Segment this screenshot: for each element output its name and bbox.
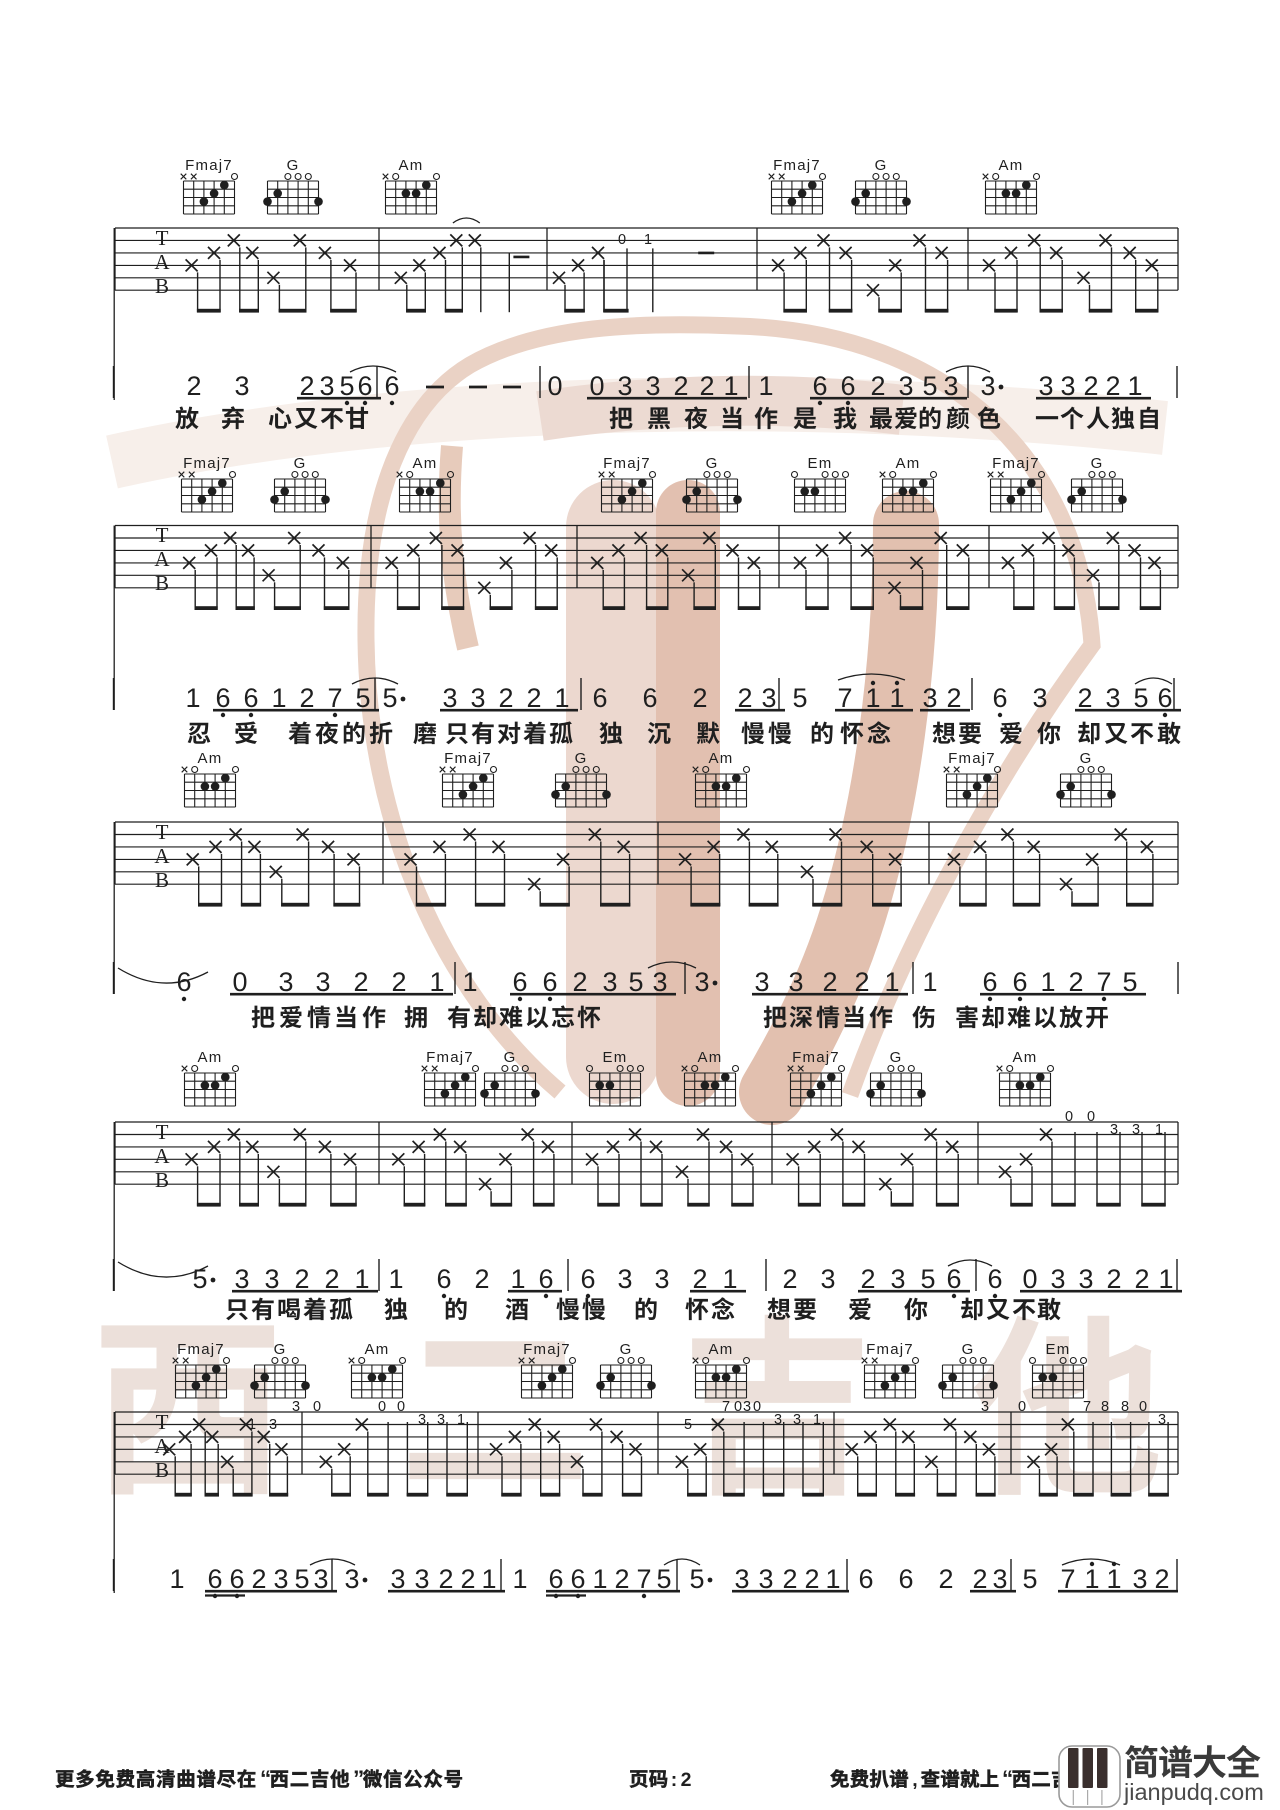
svg-text:5: 5 xyxy=(792,683,807,713)
svg-text:3: 3 xyxy=(292,1399,300,1415)
svg-text:3: 3 xyxy=(1132,1564,1147,1594)
svg-text:6: 6 xyxy=(992,683,1007,713)
svg-text:0: 0 xyxy=(589,371,604,401)
svg-text:1: 1 xyxy=(248,1417,256,1433)
svg-text:6: 6 xyxy=(436,1264,451,1294)
svg-text:1: 1 xyxy=(884,967,899,997)
svg-text:2: 2 xyxy=(870,371,885,401)
svg-text:5: 5 xyxy=(1022,1564,1037,1594)
svg-text:3: 3 xyxy=(754,967,769,997)
svg-text:0: 0 xyxy=(734,1399,742,1415)
svg-text:2: 2 xyxy=(737,683,752,713)
svg-text:6: 6 xyxy=(840,371,855,401)
svg-text:3: 3 xyxy=(234,1264,249,1294)
svg-text:B: B xyxy=(155,571,169,595)
svg-text::: : xyxy=(671,1769,678,1791)
svg-text:3: 3 xyxy=(1110,1122,1118,1138)
svg-text:7: 7 xyxy=(1083,1399,1091,1415)
svg-text:0: 0 xyxy=(1022,1264,1037,1294)
svg-text:Fmaj7: Fmaj7 xyxy=(792,1049,840,1066)
svg-text:5: 5 xyxy=(920,1264,935,1294)
svg-text:6: 6 xyxy=(642,683,657,713)
svg-text:1: 1 xyxy=(1106,1564,1121,1594)
svg-text:1: 1 xyxy=(169,1564,184,1594)
svg-text:2: 2 xyxy=(1068,967,1083,997)
svg-text:3: 3 xyxy=(234,371,249,401)
svg-text:1: 1 xyxy=(722,1264,737,1294)
svg-text:B: B xyxy=(155,868,169,892)
svg-text:5: 5 xyxy=(689,1564,704,1594)
svg-text:T: T xyxy=(156,226,169,250)
svg-text:7: 7 xyxy=(722,1399,730,1415)
svg-text:1: 1 xyxy=(723,371,738,401)
svg-text:6: 6 xyxy=(946,1264,961,1294)
svg-text:1: 1 xyxy=(1155,1122,1163,1138)
svg-text:5: 5 xyxy=(1133,683,1148,713)
svg-text:3: 3 xyxy=(1132,1122,1140,1138)
svg-text:3: 3 xyxy=(1050,1264,1065,1294)
svg-text:3: 3 xyxy=(922,683,937,713)
svg-text:5: 5 xyxy=(339,371,354,401)
svg-text:3: 3 xyxy=(1105,683,1120,713)
svg-text:3: 3 xyxy=(278,967,293,997)
svg-text:1: 1 xyxy=(554,683,569,713)
svg-text:3: 3 xyxy=(774,1412,782,1428)
svg-text:7: 7 xyxy=(1096,967,1111,997)
svg-text:,: , xyxy=(912,1769,917,1791)
svg-text:B: B xyxy=(155,274,169,298)
svg-text:3: 3 xyxy=(313,1564,328,1594)
svg-text:3: 3 xyxy=(315,967,330,997)
svg-text:5: 5 xyxy=(684,1417,692,1433)
svg-text:6: 6 xyxy=(987,1264,1002,1294)
svg-text:3: 3 xyxy=(602,967,617,997)
svg-text:3: 3 xyxy=(654,1264,669,1294)
svg-text:0: 0 xyxy=(547,371,562,401)
svg-text:6: 6 xyxy=(982,967,997,997)
svg-text:Fmaj7: Fmaj7 xyxy=(444,750,492,767)
svg-text:6: 6 xyxy=(229,1564,244,1594)
svg-text:0: 0 xyxy=(1087,1109,1095,1125)
svg-text:Fmaj7: Fmaj7 xyxy=(426,1049,474,1066)
svg-text:B: B xyxy=(155,1458,169,1482)
svg-text:G: G xyxy=(294,455,307,472)
svg-text:3: 3 xyxy=(645,371,660,401)
svg-text:2: 2 xyxy=(1106,1264,1121,1294)
svg-text:3: 3 xyxy=(470,683,485,713)
svg-text:Fmaj7: Fmaj7 xyxy=(866,1341,914,1358)
svg-text:6: 6 xyxy=(580,1264,595,1294)
svg-text:3: 3 xyxy=(414,1564,429,1594)
svg-text:2: 2 xyxy=(353,967,368,997)
svg-text:G: G xyxy=(706,455,719,472)
svg-text:T: T xyxy=(156,820,169,844)
svg-text:2: 2 xyxy=(822,967,837,997)
svg-text:Am: Am xyxy=(1013,1049,1038,1066)
svg-text:3: 3 xyxy=(344,1564,359,1594)
svg-text:6: 6 xyxy=(898,1564,913,1594)
svg-text:Fmaj7: Fmaj7 xyxy=(948,750,996,767)
svg-text:2: 2 xyxy=(782,1264,797,1294)
svg-text:G: G xyxy=(1080,750,1093,767)
svg-text:3: 3 xyxy=(1032,683,1047,713)
svg-text:6: 6 xyxy=(812,371,827,401)
svg-text:3: 3 xyxy=(269,1417,277,1433)
svg-text:T: T xyxy=(156,1120,169,1144)
svg-text:G: G xyxy=(575,750,588,767)
svg-text:2: 2 xyxy=(299,371,314,401)
svg-text:2: 2 xyxy=(681,1769,692,1791)
svg-text:1: 1 xyxy=(865,683,880,713)
svg-text:G: G xyxy=(504,1049,517,1066)
svg-text:3: 3 xyxy=(793,1412,801,1428)
svg-text:0: 0 xyxy=(1065,1109,1073,1125)
svg-text:Am: Am xyxy=(999,157,1024,174)
svg-text:3: 3 xyxy=(788,967,803,997)
svg-text:1: 1 xyxy=(457,1412,465,1428)
svg-text:0: 0 xyxy=(753,1399,761,1415)
svg-text:2: 2 xyxy=(186,371,201,401)
svg-text:1: 1 xyxy=(1158,1264,1173,1294)
svg-text:“: “ xyxy=(260,1766,271,1791)
svg-text:0: 0 xyxy=(1139,1399,1147,1415)
svg-text:A: A xyxy=(154,1144,170,1168)
svg-text:G: G xyxy=(274,1341,287,1358)
svg-text:6: 6 xyxy=(592,683,607,713)
svg-text:3: 3 xyxy=(743,1399,751,1415)
svg-text:6: 6 xyxy=(512,967,527,997)
svg-text:2: 2 xyxy=(251,1564,266,1594)
svg-text:0: 0 xyxy=(313,1399,321,1415)
svg-text:8: 8 xyxy=(1101,1399,1109,1415)
svg-text:3: 3 xyxy=(981,1399,989,1415)
svg-text:3: 3 xyxy=(1038,371,1053,401)
svg-text:6: 6 xyxy=(384,371,399,401)
svg-text:8: 8 xyxy=(1121,1399,1129,1415)
svg-text:3: 3 xyxy=(761,683,776,713)
svg-text:1: 1 xyxy=(825,1564,840,1594)
svg-text:2: 2 xyxy=(614,1564,629,1594)
svg-text:2: 2 xyxy=(692,1264,707,1294)
svg-text:2: 2 xyxy=(1154,1564,1169,1594)
svg-text:Am: Am xyxy=(198,1049,223,1066)
svg-text:3: 3 xyxy=(319,371,334,401)
svg-text:3: 3 xyxy=(1060,371,1075,401)
svg-text:5: 5 xyxy=(922,371,937,401)
svg-text:3: 3 xyxy=(1078,1264,1093,1294)
svg-text:2: 2 xyxy=(1077,683,1092,713)
svg-text:2: 2 xyxy=(782,1564,797,1594)
svg-text:2: 2 xyxy=(474,1264,489,1294)
svg-text:1: 1 xyxy=(922,967,937,997)
svg-text:1: 1 xyxy=(1084,1564,1099,1594)
svg-text:2: 2 xyxy=(526,683,541,713)
svg-text:6: 6 xyxy=(243,683,258,713)
svg-text:1: 1 xyxy=(889,683,904,713)
svg-text:2: 2 xyxy=(938,1564,953,1594)
svg-text:3: 3 xyxy=(418,1412,426,1428)
svg-text:2: 2 xyxy=(804,1564,819,1594)
svg-text:1: 1 xyxy=(512,1564,527,1594)
svg-text:Am: Am xyxy=(709,1341,734,1358)
svg-text:5: 5 xyxy=(192,1264,207,1294)
svg-text:1: 1 xyxy=(271,683,286,713)
svg-text:2: 2 xyxy=(294,1264,309,1294)
svg-text:7: 7 xyxy=(327,683,342,713)
svg-text:3: 3 xyxy=(694,967,709,997)
svg-text:3: 3 xyxy=(273,1564,288,1594)
svg-text:1: 1 xyxy=(1040,967,1055,997)
svg-text:2: 2 xyxy=(692,683,707,713)
svg-text:3: 3 xyxy=(390,1564,405,1594)
svg-text:Am: Am xyxy=(365,1341,390,1358)
svg-text:1: 1 xyxy=(462,967,477,997)
svg-text:Am: Am xyxy=(896,455,921,472)
svg-text:1: 1 xyxy=(510,1264,525,1294)
svg-text:0: 0 xyxy=(397,1399,405,1415)
svg-text:2: 2 xyxy=(854,967,869,997)
svg-text:3: 3 xyxy=(890,1264,905,1294)
svg-text:Am: Am xyxy=(413,455,438,472)
svg-text:2: 2 xyxy=(324,1264,339,1294)
svg-text:2: 2 xyxy=(673,371,688,401)
svg-text:6: 6 xyxy=(215,683,230,713)
svg-text:G: G xyxy=(1091,455,1104,472)
svg-text:1: 1 xyxy=(429,967,444,997)
svg-text:Em: Em xyxy=(808,455,833,472)
svg-text:Fmaj7: Fmaj7 xyxy=(773,157,821,174)
svg-text:G: G xyxy=(620,1341,633,1358)
svg-text:2: 2 xyxy=(946,683,961,713)
svg-text:Fmaj7: Fmaj7 xyxy=(603,455,651,472)
svg-text:T: T xyxy=(156,1410,169,1434)
svg-text:3: 3 xyxy=(758,1564,773,1594)
svg-text:1: 1 xyxy=(758,371,773,401)
svg-text:3: 3 xyxy=(652,967,667,997)
svg-text:Am: Am xyxy=(399,157,424,174)
svg-text:3: 3 xyxy=(898,371,913,401)
svg-text:2: 2 xyxy=(438,1564,453,1594)
svg-text:5: 5 xyxy=(656,1564,671,1594)
svg-text:G: G xyxy=(962,1341,975,1358)
svg-text:Am: Am xyxy=(698,1049,723,1066)
svg-text:A: A xyxy=(154,547,170,571)
svg-text:1: 1 xyxy=(813,1412,821,1428)
svg-text:7: 7 xyxy=(636,1564,651,1594)
svg-text:2: 2 xyxy=(572,967,587,997)
svg-text:3: 3 xyxy=(980,371,995,401)
svg-text:6: 6 xyxy=(357,371,372,401)
svg-text:1: 1 xyxy=(388,1264,403,1294)
svg-text:3: 3 xyxy=(437,1412,445,1428)
svg-text:2: 2 xyxy=(860,1264,875,1294)
svg-text:1: 1 xyxy=(644,232,652,248)
svg-text:1: 1 xyxy=(354,1264,369,1294)
svg-text:5: 5 xyxy=(628,967,643,997)
svg-text:G: G xyxy=(287,157,300,174)
svg-text:6: 6 xyxy=(542,967,557,997)
svg-text:2: 2 xyxy=(498,683,513,713)
svg-text:2: 2 xyxy=(699,371,714,401)
svg-text:3: 3 xyxy=(617,1264,632,1294)
svg-text:5: 5 xyxy=(355,683,370,713)
svg-text:3: 3 xyxy=(1158,1412,1166,1428)
svg-text:1: 1 xyxy=(592,1564,607,1594)
svg-text:B: B xyxy=(155,1168,169,1192)
svg-text:T: T xyxy=(156,523,169,547)
svg-text:3: 3 xyxy=(734,1564,749,1594)
svg-text:Fmaj7: Fmaj7 xyxy=(183,455,231,472)
svg-text:3: 3 xyxy=(617,371,632,401)
svg-text:2: 2 xyxy=(1083,371,1098,401)
svg-text:2: 2 xyxy=(460,1564,475,1594)
svg-text:2: 2 xyxy=(391,967,406,997)
svg-text:Am: Am xyxy=(198,750,223,767)
svg-text:A: A xyxy=(154,844,170,868)
svg-text:1: 1 xyxy=(1127,371,1142,401)
svg-text:2: 2 xyxy=(299,683,314,713)
svg-text:6: 6 xyxy=(538,1264,553,1294)
svg-text:Em: Em xyxy=(1046,1341,1071,1358)
svg-text:7: 7 xyxy=(837,683,852,713)
svg-text:6: 6 xyxy=(207,1564,222,1594)
svg-text:6: 6 xyxy=(570,1564,585,1594)
svg-text:”: ” xyxy=(353,1766,364,1791)
svg-text:3: 3 xyxy=(820,1264,835,1294)
svg-text:Fmaj7: Fmaj7 xyxy=(185,157,233,174)
svg-text:G: G xyxy=(875,157,888,174)
svg-text:Fmaj7: Fmaj7 xyxy=(992,455,1040,472)
svg-text:Fmaj7: Fmaj7 xyxy=(523,1341,571,1358)
svg-text:A: A xyxy=(154,250,170,274)
svg-text:2: 2 xyxy=(972,1564,987,1594)
svg-text:A: A xyxy=(154,1434,170,1458)
svg-text:Fmaj7: Fmaj7 xyxy=(177,1341,225,1358)
svg-text:1: 1 xyxy=(185,683,200,713)
svg-text:6: 6 xyxy=(1157,683,1172,713)
svg-text:jianpudq.com: jianpudq.com xyxy=(1123,1779,1264,1805)
svg-text:6: 6 xyxy=(548,1564,563,1594)
svg-text:3: 3 xyxy=(943,371,958,401)
svg-text:6: 6 xyxy=(1012,967,1027,997)
svg-text:G: G xyxy=(890,1049,903,1066)
svg-text:0: 0 xyxy=(1018,1399,1026,1415)
svg-text:5: 5 xyxy=(294,1564,309,1594)
svg-text:“: “ xyxy=(1002,1766,1013,1791)
svg-text:0: 0 xyxy=(232,967,247,997)
svg-text:3: 3 xyxy=(442,683,457,713)
svg-text:6: 6 xyxy=(858,1564,873,1594)
svg-text:2: 2 xyxy=(1134,1264,1149,1294)
svg-text:7: 7 xyxy=(1060,1564,1075,1594)
svg-text:1: 1 xyxy=(481,1564,496,1594)
svg-text:3: 3 xyxy=(264,1264,279,1294)
svg-text:5: 5 xyxy=(382,683,397,713)
svg-text:2: 2 xyxy=(1105,371,1120,401)
svg-text:3: 3 xyxy=(992,1564,1007,1594)
svg-text:0: 0 xyxy=(378,1399,386,1415)
svg-text:5: 5 xyxy=(1122,967,1137,997)
svg-text:Em: Em xyxy=(603,1049,628,1066)
svg-text:Am: Am xyxy=(709,750,734,767)
svg-text:0: 0 xyxy=(618,232,626,248)
